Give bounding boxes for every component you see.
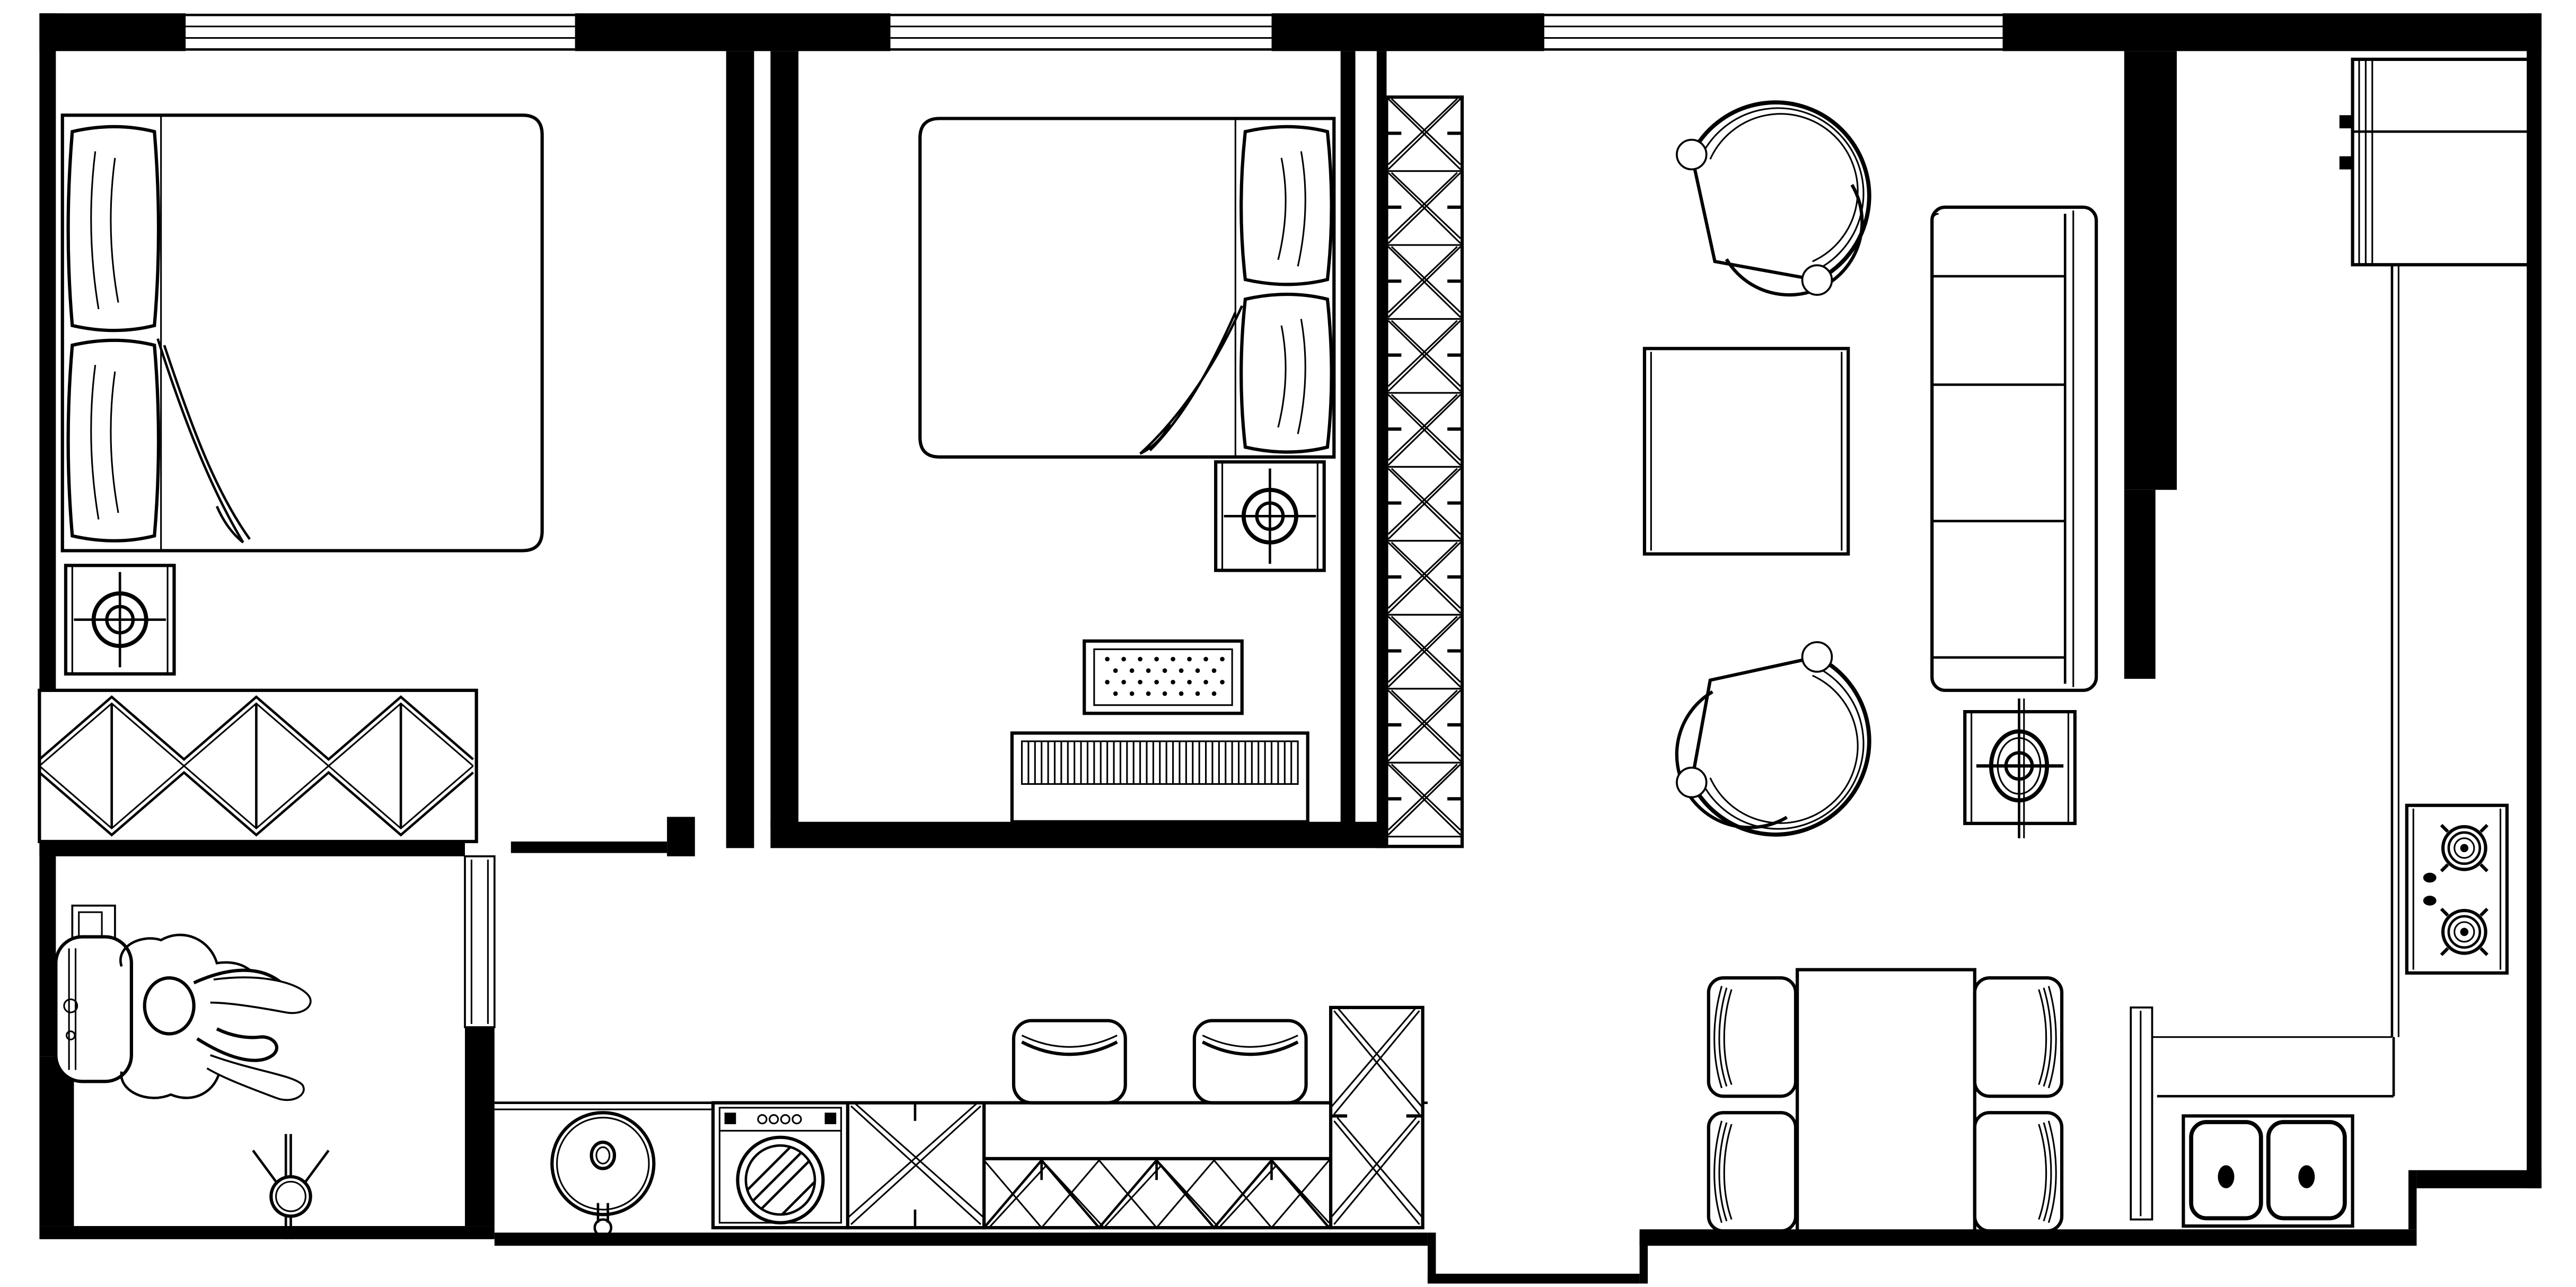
slatted-cabinet: [1012, 733, 1308, 821]
hallway-tall-cabinet: [1386, 97, 1462, 846]
x-tower-cabinet: [1331, 1008, 1423, 1228]
dining-chair: [1709, 1113, 1796, 1231]
dining-chair: [1975, 978, 2062, 1096]
ceiling-light-icon: [1965, 698, 2075, 838]
refrigerator-cabinet: [2340, 59, 2528, 265]
floor-plan: [0, 0, 2576, 1287]
dining-chair: [1975, 1113, 2062, 1231]
x-base-cabinet: [848, 1103, 984, 1228]
gas-cooktop: [2407, 806, 2507, 973]
window-bedroom-1: [186, 15, 575, 49]
kitchen: [495, 59, 2528, 1236]
ceiling-light-icon: [66, 565, 174, 674]
dining-chair: [1709, 978, 1796, 1096]
dining-table: [1797, 970, 1975, 1231]
burner: [2441, 909, 2487, 955]
tub-armchair: [1639, 605, 1915, 880]
burner: [2441, 825, 2487, 871]
wardrobe: [39, 690, 476, 842]
pantry-panel: [2131, 1008, 2152, 1220]
light-fixture-icon: [253, 1134, 329, 1239]
knob: [2423, 896, 2437, 906]
ceiling-light-icon: [1216, 462, 1324, 571]
window-living-room: [1544, 15, 2003, 49]
bathroom: [56, 906, 328, 1239]
window-bedroom-2: [891, 15, 1272, 49]
washing-machine: [713, 1103, 848, 1228]
bathroom-door: [465, 856, 495, 1027]
round-sink: [552, 1113, 654, 1236]
coffee-table: [1645, 348, 1848, 554]
living-room: [1639, 57, 2096, 880]
double-bed: [920, 118, 1334, 457]
sofa: [1932, 207, 2096, 690]
bar-stool: [1014, 1021, 1126, 1103]
knob: [2423, 873, 2437, 883]
windows: [186, 15, 2002, 49]
tub-armchair: [1639, 57, 1915, 332]
bottom-counter: [495, 1008, 1428, 1236]
bedroom-1: [39, 115, 542, 842]
bedroom-2: [920, 118, 1334, 821]
dotted-rug: [1084, 641, 1242, 713]
bar-counter-lattice: [984, 1103, 1331, 1228]
seated-person: [120, 935, 310, 1100]
double-bed: [63, 115, 542, 550]
dining-area: [1709, 970, 2062, 1231]
bar-stool: [1194, 1021, 1306, 1103]
double-basin-sink: [2183, 1116, 2352, 1226]
